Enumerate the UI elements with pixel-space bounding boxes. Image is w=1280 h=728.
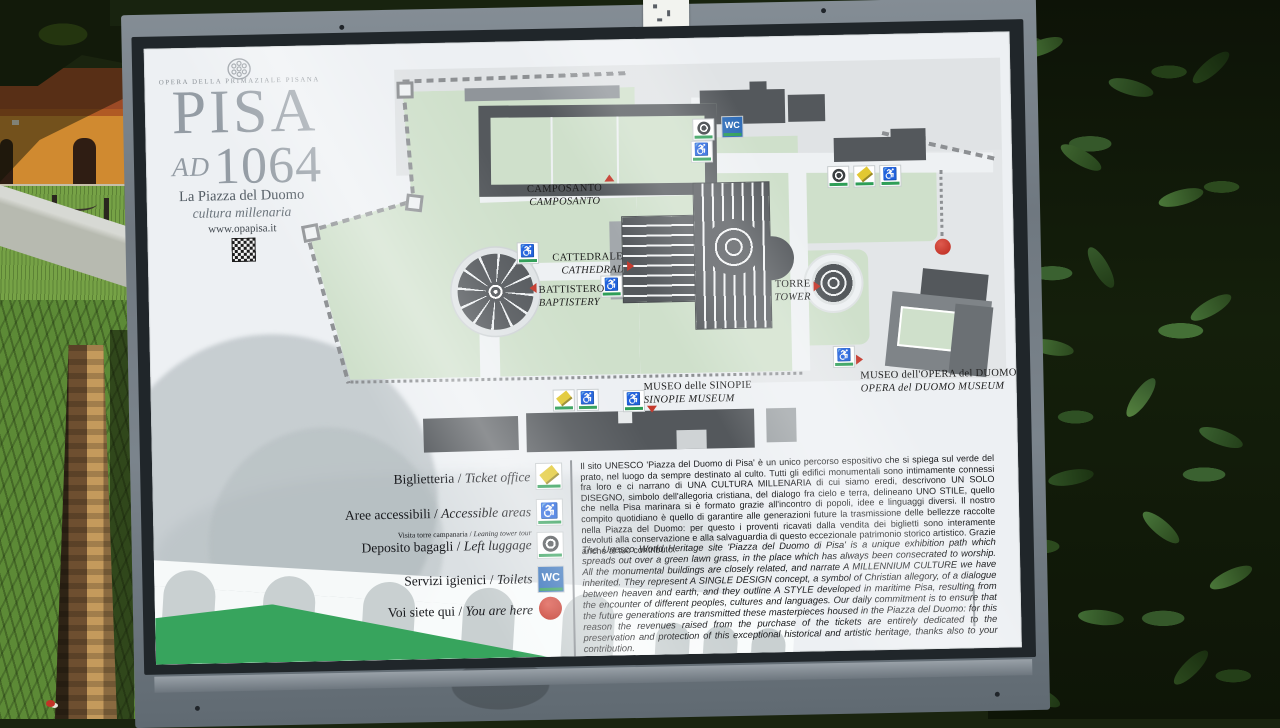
screw bbox=[821, 8, 826, 13]
qr-code bbox=[231, 238, 255, 262]
left-luggage-icon bbox=[828, 167, 848, 187]
wheelchair-icon: ♿ bbox=[624, 391, 644, 411]
wheelchair-icon: ♿ bbox=[537, 500, 562, 525]
baptistery-marker bbox=[529, 283, 536, 293]
edge-buildings bbox=[749, 81, 766, 91]
sinopie-marker bbox=[647, 406, 657, 413]
arched-door bbox=[73, 138, 96, 188]
map-path bbox=[479, 330, 500, 378]
screw bbox=[195, 706, 200, 711]
cathedral-marker bbox=[627, 261, 634, 271]
opera-museum-marker bbox=[856, 354, 863, 364]
wheelchair-icon: ♿ bbox=[692, 141, 712, 161]
subtitle-italic: cultura millenaria bbox=[147, 203, 337, 223]
tower-label: TORRETOWER bbox=[748, 278, 810, 304]
opera-museum-label: MUSEO dell'OPERA del DUOMOOPERA del DUOM… bbox=[860, 367, 1022, 396]
ticket-office-icon bbox=[854, 166, 874, 186]
ticket-office-icon bbox=[554, 390, 574, 410]
left-luggage-icon bbox=[693, 119, 713, 139]
wheelchair-icon: ♿ bbox=[834, 347, 854, 367]
litter bbox=[46, 700, 55, 707]
camposanto-marker bbox=[604, 174, 614, 181]
camposanto-label: CAMPOSANTOCAMPOSANTO bbox=[514, 182, 614, 209]
sinopie-label: MUSEO delle SINOPIESINOPIE MUSEUM bbox=[643, 379, 783, 407]
sinopie-buildings bbox=[526, 409, 755, 453]
information-sign: WC ♿ ♿ ♿ ♿ ♿ ♿ ♿ CAMPOSANTOCAMPOSANTO CA… bbox=[121, 0, 1050, 728]
tower-marker bbox=[813, 281, 820, 291]
screw bbox=[339, 25, 344, 30]
sinopie-buildings bbox=[423, 416, 519, 453]
english-description: The Unesco World Heritage site 'Piazza d… bbox=[582, 536, 998, 654]
sinopie-buildings bbox=[766, 408, 797, 443]
photo-scene: WC ♿ ♿ ♿ ♿ ♿ ♿ ♿ CAMPOSANTOCAMPOSANTO CA… bbox=[0, 0, 1280, 719]
wall-tower bbox=[405, 193, 424, 212]
toilets-icon: WC bbox=[722, 117, 742, 137]
edge-buildings bbox=[788, 94, 826, 122]
screw bbox=[995, 692, 1000, 697]
wall-tower bbox=[396, 81, 413, 98]
baptistery-label: BATTISTEROBAPTISTERY bbox=[538, 283, 633, 310]
edge-buildings bbox=[890, 128, 925, 141]
toilets-icon: WC bbox=[538, 566, 563, 591]
wheelchair-icon: ♿ bbox=[880, 166, 900, 186]
left-luggage-icon bbox=[537, 532, 562, 557]
wheelchair-icon: ♿ bbox=[578, 390, 598, 410]
cathedral-label: CATTEDRALECATHEDRAL bbox=[533, 251, 623, 278]
map-panel: WC ♿ ♿ ♿ ♿ ♿ ♿ ♿ CAMPOSANTOCAMPOSANTO CA… bbox=[144, 31, 1022, 664]
ticket-office-icon bbox=[536, 464, 561, 489]
